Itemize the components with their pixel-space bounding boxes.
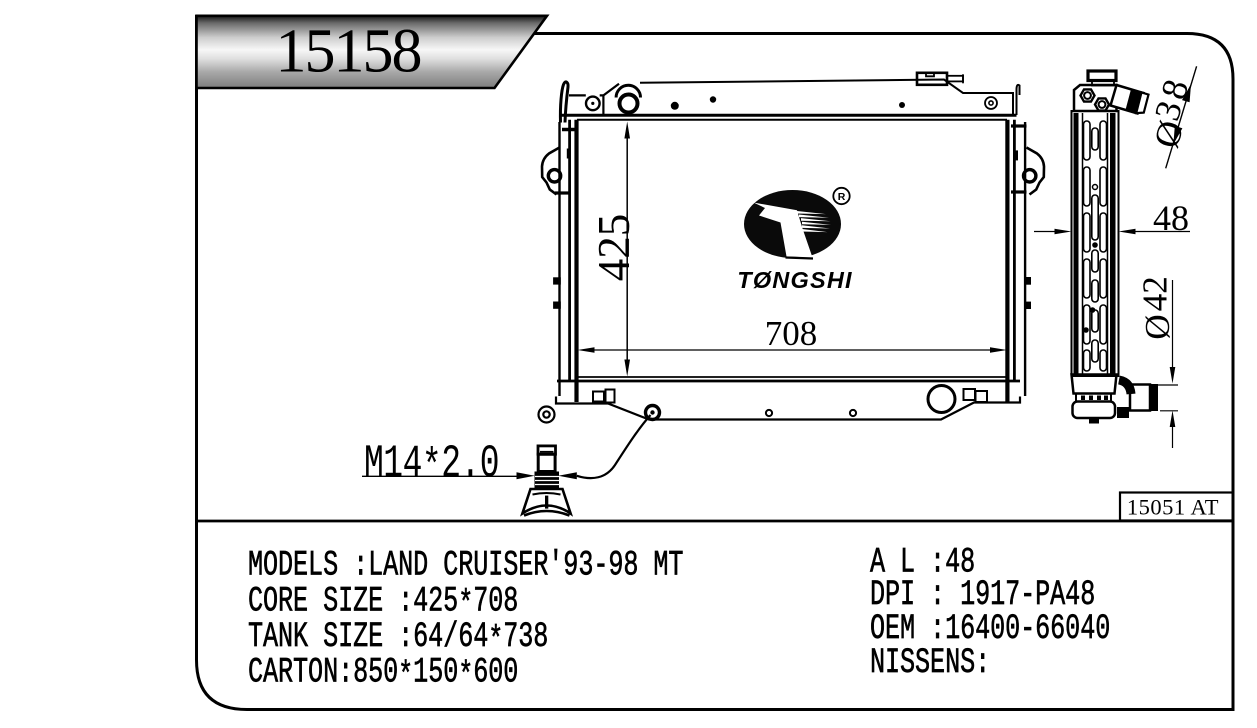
svg-text:4: 4 [1136,294,1175,312]
svg-text:MODELS :LAND CRUISER'93-98 MT: MODELS :LAND CRUISER'93-98 MT [248,546,683,586]
svg-text:48: 48 [1153,198,1189,238]
svg-text:15051 AT: 15051 AT [1127,495,1219,520]
svg-text:425: 425 [589,214,639,282]
svg-text:15158: 15158 [276,18,421,86]
svg-text:R: R [838,191,846,203]
svg-text:CARTON:850*150*600: CARTON:850*150*600 [248,653,518,697]
svg-text:TØNGSHI: TØNGSHI [737,267,852,293]
svg-text:Ø: Ø [1138,314,1177,339]
svg-text:NISSENS:: NISSENS: [870,643,990,683]
svg-text:M14*2.0: M14*2.0 [364,439,499,494]
svg-text:708: 708 [765,314,818,353]
svg-text:2: 2 [1136,276,1175,294]
